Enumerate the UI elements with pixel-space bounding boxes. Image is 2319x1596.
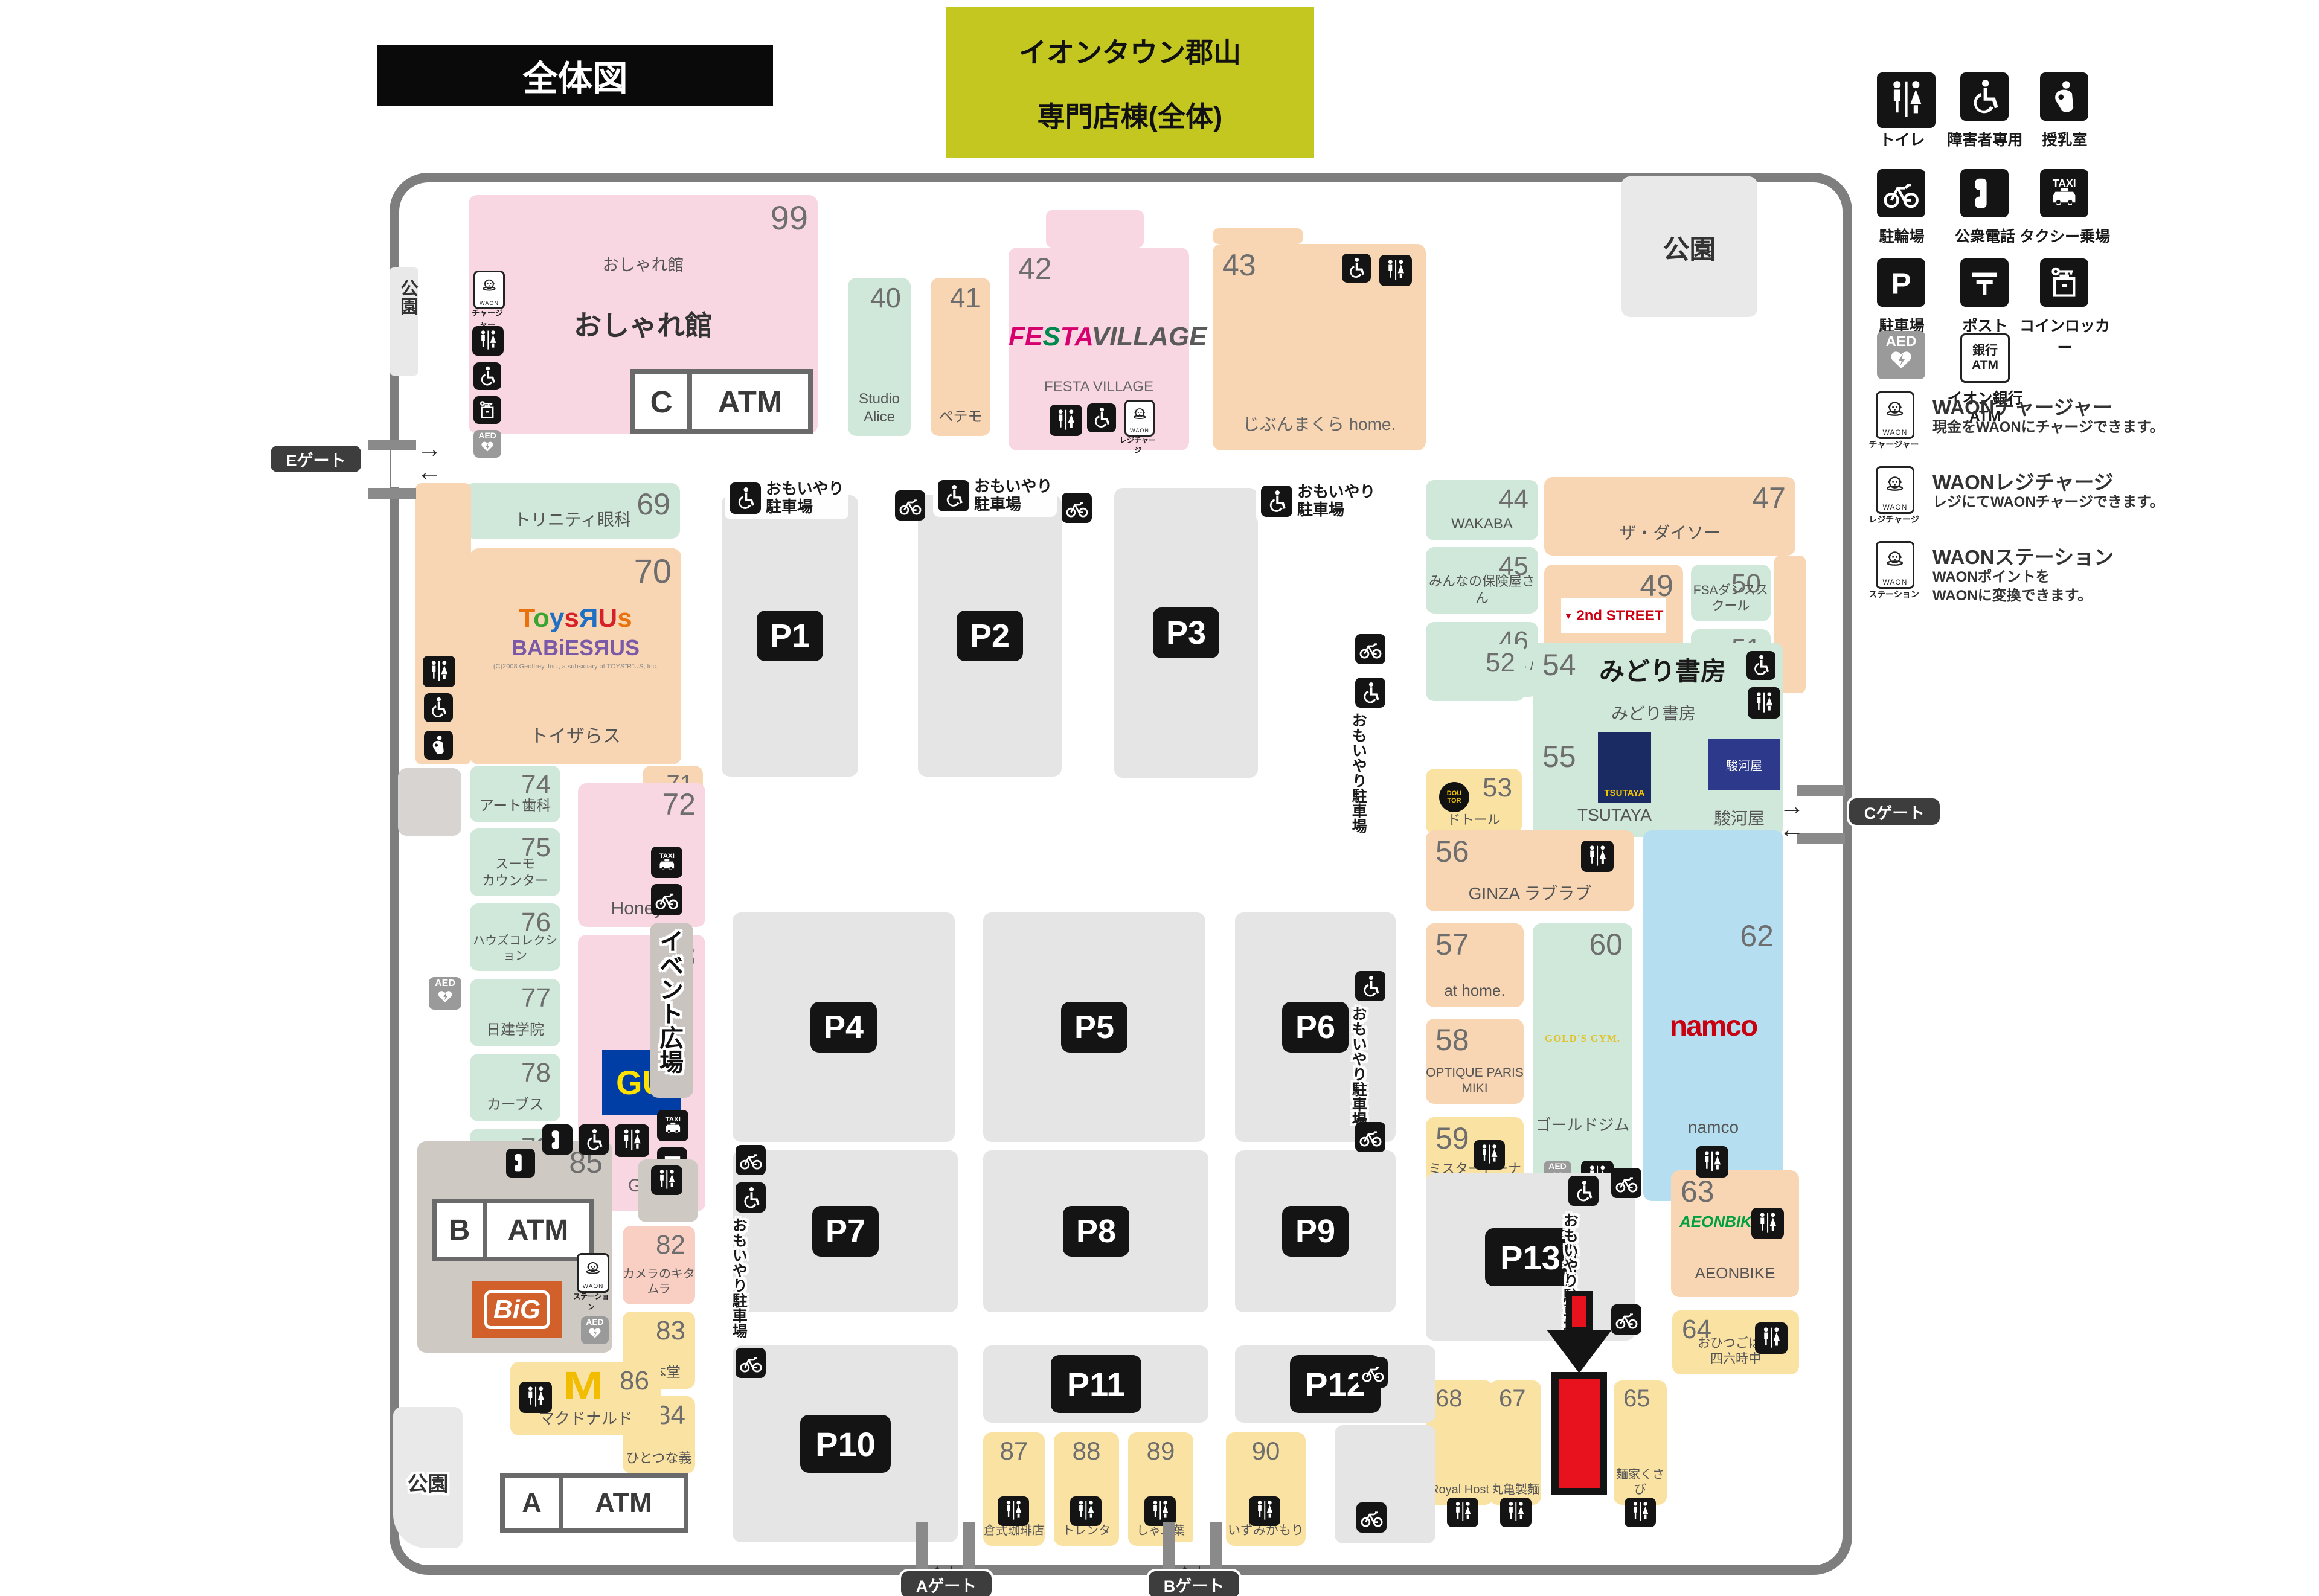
- store-label-43: じぶんまくら home.: [1213, 414, 1426, 435]
- store-block-70[interactable]: 70ToysЯUsBABiESЯUS(C)2008 Geoffrey, Inc.…: [470, 548, 681, 764]
- bicycle-parking-icon: [1611, 1168, 1641, 1198]
- gate-b-badge[interactable]: Bゲート: [1149, 1571, 1239, 1596]
- park-label-bottom-left: 公園: [396, 1467, 460, 1497]
- legend-waon-desc-2: レジにてWAONチャージできます。: [1932, 493, 2164, 511]
- atm-label: ATM: [487, 1203, 589, 1257]
- atm-c[interactable]: CATM: [630, 369, 813, 434]
- store-label-76: ハウズコレクション: [470, 934, 560, 964]
- gate-c-badge[interactable]: Cゲート: [1849, 798, 1940, 825]
- bicycle-parking-icon: [736, 1348, 766, 1378]
- parking-lot-P1[interactable]: P1: [722, 495, 858, 777]
- svg-text:TAXI: TAXI: [659, 853, 674, 860]
- atm-letter: A: [505, 1478, 559, 1528]
- legend-label-taxi: タクシー乗場: [2015, 225, 2115, 246]
- omoiyari-parking-badge-p3-side: おもいやり駐車場: [1350, 713, 1390, 851]
- store-label-41: ペテモ: [931, 408, 990, 426]
- store-sublabel-54: みどり書房: [1611, 700, 1696, 725]
- omoiyari-label: おもいやり駐車場: [766, 480, 844, 516]
- toilet-icon: [1625, 1498, 1656, 1527]
- aed-icon: AED: [429, 977, 461, 1010]
- wheelchair-icon: [1342, 254, 1371, 283]
- wheelchair-icon: [1355, 971, 1385, 1001]
- atm-label: ATM: [563, 1478, 684, 1528]
- atm-a[interactable]: AATM: [500, 1473, 688, 1533]
- store-block-60[interactable]: 60GOLD'S GYM.ゴールドジム: [1533, 923, 1632, 1201]
- highlighted-store[interactable]: [1551, 1372, 1607, 1495]
- legend-aed-icon: AED: [1877, 331, 1925, 379]
- toilet-icon: [1748, 687, 1780, 719]
- legend-locker-icon: [2040, 258, 2088, 307]
- gate-a-badge[interactable]: Aゲート: [901, 1571, 992, 1596]
- parking-label-P8: P8: [1063, 1206, 1129, 1257]
- legend-waon-desc-3: WAONポイントをWAONに変換できます。: [1932, 568, 2092, 605]
- store-number-56: 56: [1435, 836, 1469, 867]
- store-block-57[interactable]: 57at home.: [1426, 923, 1524, 1007]
- store-number-43: 43: [1222, 250, 1256, 280]
- atm-divider: [559, 1478, 563, 1528]
- legend-taxi-icon: TAXI: [2040, 169, 2088, 217]
- waon-reji-tag: レジチャージ: [1120, 435, 1156, 455]
- store-block-87[interactable]: 87倉式珈琲店: [983, 1432, 1045, 1546]
- waon-charger-icon: WAON: [473, 271, 505, 309]
- parking-label-P4: P4: [810, 1002, 877, 1053]
- store-block-41[interactable]: 41ペテモ: [931, 278, 990, 436]
- bicycle-parking-icon: [1355, 634, 1385, 664]
- legend-phone-icon: [1960, 169, 2009, 217]
- store-block-58[interactable]: 58OPTIQUE PARIS MIKI: [1426, 1019, 1524, 1104]
- public-phone-icon: [542, 1124, 573, 1155]
- bicycle-parking-icon: [736, 1145, 766, 1175]
- gate-a-post-right: [963, 1522, 975, 1572]
- festa-village-logo: FESTAVILLAGE: [1009, 320, 1189, 353]
- mall-map-canvas: 全体図 イオンタウン郡山 専門店棟(全体) 99おしゃれ館おしゃれ館40Stud…: [0, 0, 2319, 1596]
- store-block-44[interactable]: 44WAKABA: [1426, 480, 1538, 540]
- toilet-icon: [1696, 1146, 1728, 1178]
- store-number-53: 53: [1483, 775, 1512, 801]
- store-number-62: 62: [1740, 921, 1774, 951]
- store-label-62: namco: [1643, 1117, 1783, 1138]
- store-number-47: 47: [1752, 483, 1786, 513]
- store-label-70: トイザらス: [470, 725, 681, 748]
- building-title-line1: イオンタウン郡山: [1019, 31, 1241, 71]
- toilet-icon: [998, 1496, 1029, 1526]
- parking-lot-P5[interactable]: P5: [983, 912, 1205, 1142]
- omoiyari-label: おもいやり駐車場: [974, 478, 1052, 514]
- page-title: 全体図: [377, 45, 773, 106]
- store-label-56: GINZA ラブラブ: [1426, 883, 1634, 904]
- toilet-icon: [423, 656, 455, 687]
- legend-waon-tag-3: ステーション: [1868, 588, 1919, 600]
- svg-text:TAXI: TAXI: [665, 1116, 680, 1123]
- store-block-89[interactable]: 89しゃぶ葉: [1128, 1432, 1193, 1546]
- gate-c-arrows: →←: [1779, 795, 1804, 841]
- store-block-65[interactable]: 65麺家くさび: [1614, 1380, 1667, 1505]
- tsutaya-logo: TSUTAYA: [1598, 732, 1651, 803]
- legend-waon-icon-2: WAON: [1876, 466, 1914, 514]
- bicycle-parking-icon: [1356, 1502, 1387, 1533]
- bicycle-parking-icon: [651, 884, 682, 915]
- parking-lot-P11[interactable]: P11: [983, 1345, 1208, 1423]
- omoiyari-parking-badge-p2: おもいやり駐車場: [933, 475, 1057, 517]
- store-number-60: 60: [1589, 929, 1623, 960]
- parking-lot-P9[interactable]: P9: [1235, 1150, 1396, 1312]
- parking-label-P7: P7: [812, 1206, 879, 1257]
- svg-text:P: P: [1891, 267, 1911, 300]
- public-phone-icon: [506, 1149, 535, 1178]
- store-number-82: 82: [656, 1232, 685, 1258]
- toilet-icon: [519, 1382, 552, 1413]
- legend-parking-icon: P: [1877, 258, 1925, 307]
- store-block-tab-42: [1046, 210, 1144, 248]
- store-label-65: 麺家くさび: [1614, 1467, 1667, 1498]
- store-number-58: 58: [1435, 1025, 1469, 1055]
- store-number-55: 55: [1542, 739, 1576, 774]
- atm-letter: C: [635, 374, 687, 429]
- coin-locker-icon: [473, 396, 501, 424]
- aed-icon: AED: [473, 430, 501, 458]
- store-label-57: at home.: [1426, 981, 1524, 1001]
- parking-lot-P3[interactable]: P3: [1114, 488, 1258, 778]
- store-block-53[interactable]: 53DOUTORドトール: [1426, 769, 1522, 834]
- toilet-icon: [1070, 1496, 1102, 1526]
- store-number-65: 65: [1623, 1386, 1650, 1411]
- legend-waon-title-2: WAONレジチャージ: [1932, 466, 2114, 495]
- store-number-89: 89: [1147, 1438, 1175, 1464]
- parking-label-P11: P11: [1051, 1355, 1141, 1413]
- event-space-label: イベント広場: [657, 929, 681, 1092]
- highlight-arrow-head: [1547, 1330, 1612, 1373]
- unlabeled-gray-block: [398, 768, 461, 836]
- waon-reji-icon: WAON: [1124, 400, 1155, 437]
- svg-text:TAXI: TAXI: [2053, 177, 2076, 189]
- waon-station-icon: WAON: [577, 1253, 609, 1293]
- taxi-stand-icon: TAXI: [657, 1110, 688, 1141]
- store-number-77: 77: [521, 985, 551, 1011]
- gate-c-gap: [1820, 796, 1838, 832]
- toysrus-babiesrus-logo: ToysЯUsBABiESЯUS(C)2008 Geoffrey, Inc., …: [470, 603, 681, 671]
- atm-divider: [483, 1203, 487, 1257]
- legend-waon-icon-1: WAON: [1876, 391, 1914, 439]
- parking-lot-P10[interactable]: P10: [733, 1345, 958, 1542]
- store-block-68[interactable]: 68Royal Host: [1426, 1380, 1493, 1505]
- legend-waon-desc-1: 現金をWAONにチャージできます。: [1932, 418, 2164, 437]
- bicycle-parking-icon: [1062, 493, 1092, 523]
- store-label-58: OPTIQUE PARIS MIKI: [1426, 1065, 1524, 1097]
- store-label-78: カーブス: [470, 1096, 560, 1114]
- toilet-icon: [1050, 405, 1082, 436]
- taxi-stand-icon: TAXI: [651, 847, 682, 878]
- building-title: イオンタウン郡山 専門店棟(全体): [946, 7, 1314, 158]
- store-label-84: ひとつな義: [623, 1450, 695, 1467]
- gate-e-gap: [391, 450, 409, 487]
- store-label-45: みんなの保険屋さん: [1426, 573, 1538, 606]
- store-label-77: 日建学院: [470, 1021, 560, 1039]
- store-number-59: 59: [1435, 1123, 1469, 1153]
- store-block-40[interactable]: 40Studio Alice: [848, 278, 911, 436]
- store-block-90[interactable]: 90いずみがもり: [1226, 1432, 1306, 1546]
- waon-station-tag: ステーション: [572, 1291, 611, 1312]
- doutor-logo: DOUTOR: [1439, 782, 1469, 812]
- wheelchair-icon: [730, 482, 761, 514]
- store-label-50: FSAダンススクール: [1691, 583, 1771, 615]
- toilet-icon: [1751, 1208, 1784, 1239]
- store-block-82[interactable]: 82カメラのキタムラ: [623, 1226, 695, 1304]
- toilet-icon: [1581, 841, 1614, 872]
- store-label-63: AEONBIKE: [1671, 1263, 1799, 1283]
- atm-label: ATM: [692, 374, 808, 429]
- parking-label-P2: P2: [957, 611, 1023, 661]
- event-space-bar: イベント広場: [650, 923, 693, 1098]
- store-number-54: 54: [1542, 647, 1576, 682]
- highlight-arrow-stem-inner: [1572, 1296, 1586, 1327]
- store-label-82: カメラのキタムラ: [623, 1267, 695, 1297]
- wheelchair-icon: [1355, 678, 1385, 708]
- parking-label-P5: P5: [1061, 1002, 1127, 1053]
- wheelchair-icon: [1087, 403, 1116, 432]
- gate-e-cap-bottom: [368, 488, 416, 499]
- store-block-54[interactable]: 54みどり書房みどり書房55TSUTAYA駿河屋TSUTAYA駿河屋: [1533, 643, 1783, 837]
- toilet-icon: [1755, 1322, 1788, 1354]
- legend-wheelchair-icon: [1960, 72, 2009, 121]
- parking-label-P10: P10: [800, 1415, 891, 1473]
- 2nd-street-logo: ▼2nd STREET: [1561, 598, 1666, 633]
- legend-label-nursing: 授乳室: [2015, 128, 2115, 150]
- bicycle-parking-icon: [895, 490, 925, 521]
- store-block-45[interactable]: 45みんなの保険屋さん: [1426, 547, 1538, 614]
- store-number-83: 83: [656, 1318, 685, 1344]
- legend-label-locker: コインロッカー: [2015, 314, 2115, 357]
- store-block-tab-70: [415, 483, 471, 764]
- gate-e-badge[interactable]: Eゲート: [271, 446, 361, 472]
- store-block-52[interactable]: 52: [1426, 644, 1525, 701]
- omoiyari-parking-badge-p1: おもいやり駐車場: [725, 477, 848, 519]
- aed-icon: AED: [581, 1316, 609, 1344]
- gate-a-post-left: [916, 1522, 928, 1572]
- bicycle-parking-icon: [1355, 1122, 1385, 1152]
- wheelchair-icon: [424, 693, 453, 722]
- store-label-68: Royal Host: [1426, 1482, 1493, 1498]
- store-number-67: 67: [1499, 1386, 1526, 1411]
- store-label-99: おしゃれ館: [469, 309, 818, 344]
- legend-toilet-icon: [1877, 72, 1936, 128]
- the-big-logo: BiG: [472, 1281, 562, 1338]
- legend-waon-icon-3: WAON: [1876, 541, 1914, 589]
- omoiyari-label: おもいやり駐車場: [731, 1217, 746, 1353]
- store-label-74: アート歯科: [470, 797, 560, 815]
- nursing-room-icon: [424, 731, 453, 760]
- store-block-47[interactable]: 47ザ・ダイソー: [1544, 477, 1795, 556]
- store-label-75: スーモカウンター: [470, 856, 560, 889]
- atm-b[interactable]: BATM: [432, 1199, 594, 1261]
- store-number-52: 52: [1486, 650, 1515, 676]
- wheelchair-icon: [1568, 1176, 1599, 1206]
- bicycle-parking-icon: [1358, 1357, 1388, 1388]
- store-number-70: 70: [634, 554, 672, 588]
- store-label-55-surugaya: 駿河屋: [1714, 806, 1765, 830]
- gate-b-post-right: [1210, 1522, 1222, 1572]
- store-block-74[interactable]: 74アート歯科: [470, 766, 560, 822]
- store-block-76[interactable]: 76ハウズコレクション: [470, 903, 560, 971]
- toilet-icon: [1249, 1496, 1280, 1526]
- store-number-72: 72: [662, 789, 696, 819]
- gate-e-arrows: →←: [417, 437, 442, 483]
- store-label-55-tsutaya: TSUTAYA: [1577, 806, 1652, 825]
- store-block-69[interactable]: 69トリニティ眼科: [465, 483, 680, 539]
- parking-label-P9: P9: [1282, 1206, 1349, 1257]
- legend-waon-tag-1: チャージャー: [1868, 438, 1919, 450]
- store-label-54: みどり書房: [1599, 651, 1726, 688]
- parking-lot-P4[interactable]: P4: [733, 912, 955, 1142]
- store-label-72: Honeys: [578, 897, 705, 920]
- toilet-icon: [615, 1124, 649, 1157]
- store-number-41: 41: [950, 284, 981, 312]
- legend-waon-tag-2: レジチャージ: [1868, 513, 1919, 525]
- store-block-tab-43: [1213, 228, 1303, 244]
- store-label-47: ザ・ダイソー: [1544, 522, 1795, 543]
- store-label-69: トリニティ眼科: [465, 509, 680, 530]
- store-number-99: 99: [771, 201, 808, 235]
- store-number-87: 87: [1000, 1438, 1028, 1464]
- store-number-86: 86: [620, 1368, 649, 1394]
- store-label-42: FESTA VILLAGE: [1009, 378, 1189, 396]
- store-number-90: 90: [1252, 1438, 1280, 1464]
- omoiyari-parking-badge-p7-side: おもいやり駐車場: [731, 1217, 771, 1356]
- toilet-icon: [1500, 1498, 1532, 1527]
- store-number-88: 88: [1073, 1438, 1101, 1464]
- store-number-49: 49: [1640, 571, 1673, 601]
- legend-nursing-icon: [2040, 72, 2088, 121]
- wheelchair-icon: [473, 362, 501, 390]
- store-number-42: 42: [1018, 254, 1052, 284]
- parking-label-P3: P3: [1153, 607, 1219, 658]
- store-block-72[interactable]: 72Honeys: [578, 783, 705, 927]
- store-block-62[interactable]: 62namconamco: [1643, 830, 1783, 1201]
- surugaya-logo: 駿河屋: [1708, 739, 1780, 790]
- toilet-icon: [1474, 1140, 1505, 1170]
- store-label-67: 丸亀製麺: [1489, 1482, 1541, 1498]
- store-number-78: 78: [521, 1060, 551, 1086]
- store-label-44: WAKABA: [1426, 515, 1538, 533]
- omoiyari-label: おもいやり駐車場: [1350, 713, 1366, 848]
- store-number-76: 76: [521, 909, 551, 936]
- toilet-icon: [1379, 255, 1412, 286]
- store-sublabel-99: おしゃれ館: [469, 255, 818, 276]
- mcdonalds-logo: M: [563, 1363, 603, 1408]
- atm-letter: B: [437, 1203, 483, 1257]
- store-label-60: ゴールドジム: [1533, 1115, 1632, 1135]
- park-area-top-right: 公園: [1621, 176, 1757, 317]
- bicycle-parking-icon: [1611, 1304, 1641, 1335]
- legend-waon-title-3: WAONステーション: [1932, 541, 2114, 570]
- store-number-44: 44: [1499, 486, 1528, 513]
- toilet-icon: [651, 1165, 682, 1195]
- park-area-left: 公園: [390, 267, 418, 376]
- store-block-77[interactable]: 77日建学院: [470, 979, 560, 1046]
- gate-b-post-left: [1163, 1522, 1175, 1572]
- wheelchair-icon: [1261, 486, 1292, 517]
- store-number-40: 40: [870, 284, 901, 312]
- legend-bank-atm-icon: 銀行ATM: [1960, 333, 2010, 383]
- parking-label-P6: P6: [1282, 1002, 1349, 1053]
- store-block-50[interactable]: 50FSAダンススクール: [1691, 565, 1771, 621]
- namco-logo: namco: [1643, 1008, 1783, 1045]
- omoiyari-label: おもいやり駐車場: [1297, 483, 1375, 519]
- store-block-67[interactable]: 67丸亀製麺: [1489, 1380, 1541, 1505]
- parking-lot-P8[interactable]: P8: [983, 1150, 1208, 1312]
- store-block-78[interactable]: 78カーブス: [470, 1054, 560, 1121]
- store-number-74: 74: [521, 772, 551, 798]
- legend-waon-title-1: WAONチャージャー: [1932, 391, 2112, 420]
- wheelchair-icon: [579, 1124, 609, 1155]
- building-title-line2: 専門店棟(全体): [1038, 95, 1223, 135]
- parking-label-P1: P1: [757, 611, 823, 661]
- wheelchair-icon: [736, 1182, 766, 1213]
- parking-lot-P13[interactable]: P13: [1426, 1173, 1635, 1341]
- toilet-icon: [1447, 1498, 1478, 1527]
- aeonbike-logo: AEONBIKE: [1679, 1213, 1762, 1231]
- store-block-88[interactable]: 88トレンタ: [1054, 1432, 1119, 1546]
- store-label-53: ドトール: [1426, 812, 1522, 828]
- store-number-68: 68: [1435, 1386, 1463, 1411]
- atm-divider: [687, 374, 692, 429]
- golds-gym-logo: GOLD'S GYM.: [1533, 1032, 1632, 1045]
- omoiyari-parking-badge-p3: おもいやり駐車場: [1256, 480, 1380, 522]
- wheelchair-icon: [938, 480, 969, 511]
- legend-bicycle-icon: [1877, 169, 1925, 217]
- store-number-57: 57: [1435, 929, 1469, 960]
- legend-post-icon: [1960, 258, 2009, 307]
- store-label-40: Studio Alice: [848, 390, 911, 426]
- parking-lot-P12[interactable]: P12: [1235, 1345, 1435, 1423]
- wheelchair-icon: [1746, 651, 1775, 680]
- toilet-icon: [472, 326, 504, 356]
- store-block-75[interactable]: 75スーモカウンター: [470, 828, 560, 896]
- gate-e-cap-top: [368, 440, 416, 450]
- parking-lot-P2[interactable]: P2: [918, 495, 1062, 777]
- store-number-63: 63: [1681, 1176, 1714, 1207]
